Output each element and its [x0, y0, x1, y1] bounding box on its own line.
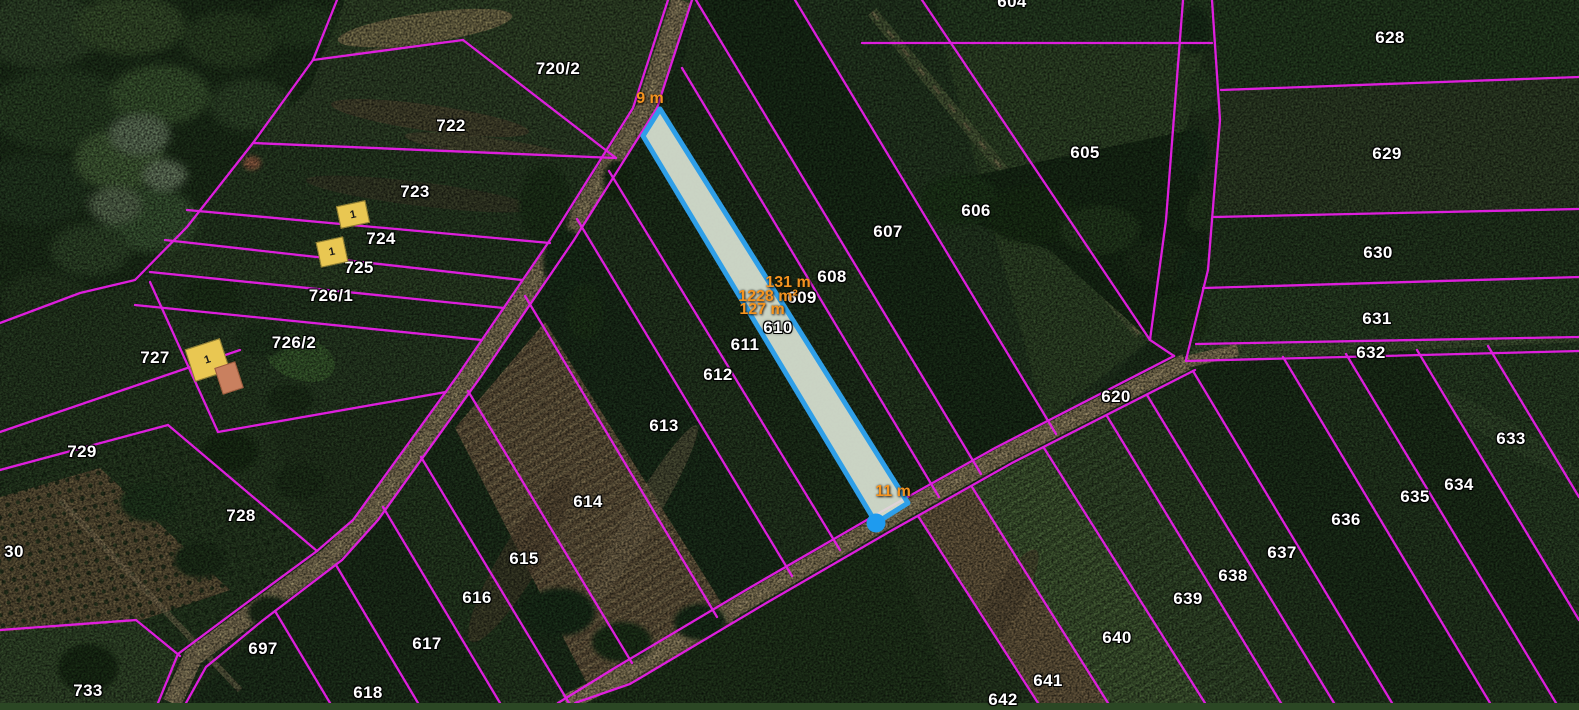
parcel-vertex-handle[interactable]: [867, 514, 886, 533]
map-viewport[interactable]: 720/2722723724725726/1726/27277297283073…: [0, 0, 1579, 703]
map-canvas[interactable]: [0, 0, 1579, 703]
